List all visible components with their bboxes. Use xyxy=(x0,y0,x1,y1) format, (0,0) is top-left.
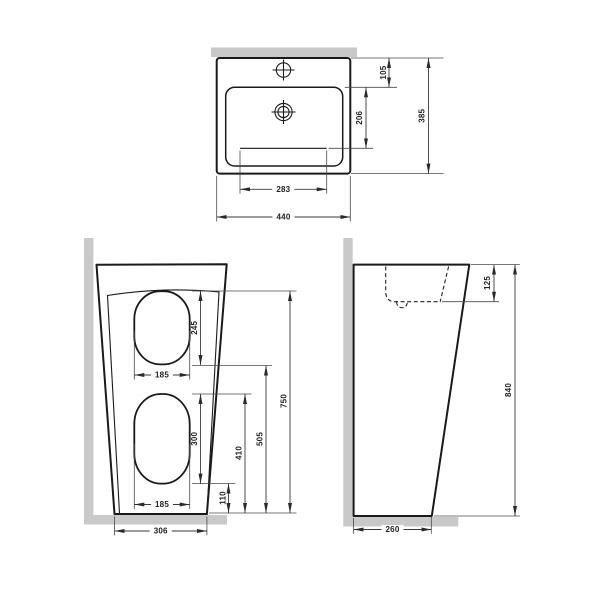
dim-label-283: 283 xyxy=(276,185,290,194)
wall-hatch-side-view xyxy=(343,238,352,517)
dim-label-185-lower: 185 xyxy=(155,500,169,509)
dim-label-840: 840 xyxy=(504,383,513,397)
dim-overall-depth: 385 xyxy=(418,58,429,174)
technical-drawing-page: 105 206 385 283 440 xyxy=(0,0,600,600)
dim-label-245: 245 xyxy=(190,320,199,334)
dim-label-125: 125 xyxy=(483,276,492,290)
washbasin-dimension-drawing: 105 206 385 283 440 xyxy=(0,0,600,600)
dim-label-300: 300 xyxy=(190,431,199,445)
dim-basin-depth: 206 xyxy=(355,87,366,148)
wall-hatch-top-view xyxy=(211,48,357,58)
dim-label-185-upper: 185 xyxy=(155,371,169,380)
front-view: 245 185 300 110 410 505 7 xyxy=(84,238,297,536)
dim-basin-inner-depth: 125 xyxy=(483,265,494,302)
floor-hatch-front-view xyxy=(84,515,227,525)
dim-base-width: 306 xyxy=(115,527,207,536)
dim-basin-opening-width: 283 xyxy=(240,185,327,194)
dim-overall-height: 840 xyxy=(504,265,515,516)
dim-overall-width: 440 xyxy=(217,213,351,222)
dim-panel-height: 750 xyxy=(280,291,291,513)
side-view: 125 840 260 xyxy=(343,238,520,534)
dim-lower-cutout-to-floor: 110 xyxy=(218,484,228,513)
dim-label-440: 440 xyxy=(277,213,291,222)
dim-label-750: 750 xyxy=(280,394,289,408)
dim-label-306: 306 xyxy=(154,527,168,536)
dim-floor-to-upper-cutout-bottom: 505 xyxy=(256,366,267,514)
dim-label-410: 410 xyxy=(235,446,244,460)
top-view: 105 206 385 283 440 xyxy=(211,48,444,222)
dim-label-110: 110 xyxy=(218,491,227,505)
dim-label-260: 260 xyxy=(386,525,400,534)
dim-label-206: 206 xyxy=(355,110,364,124)
dim-label-505: 505 xyxy=(256,432,265,446)
dim-back-ledge-depth: 105 xyxy=(379,58,389,87)
wall-hatch-front-view xyxy=(84,238,93,515)
dim-floor-to-lower-cutout-top: 410 xyxy=(235,394,246,513)
pedestal-outline-front xyxy=(97,264,227,514)
dim-label-105: 105 xyxy=(379,65,388,79)
pedestal-outline-side xyxy=(354,265,470,516)
dim-label-385: 385 xyxy=(418,108,427,122)
